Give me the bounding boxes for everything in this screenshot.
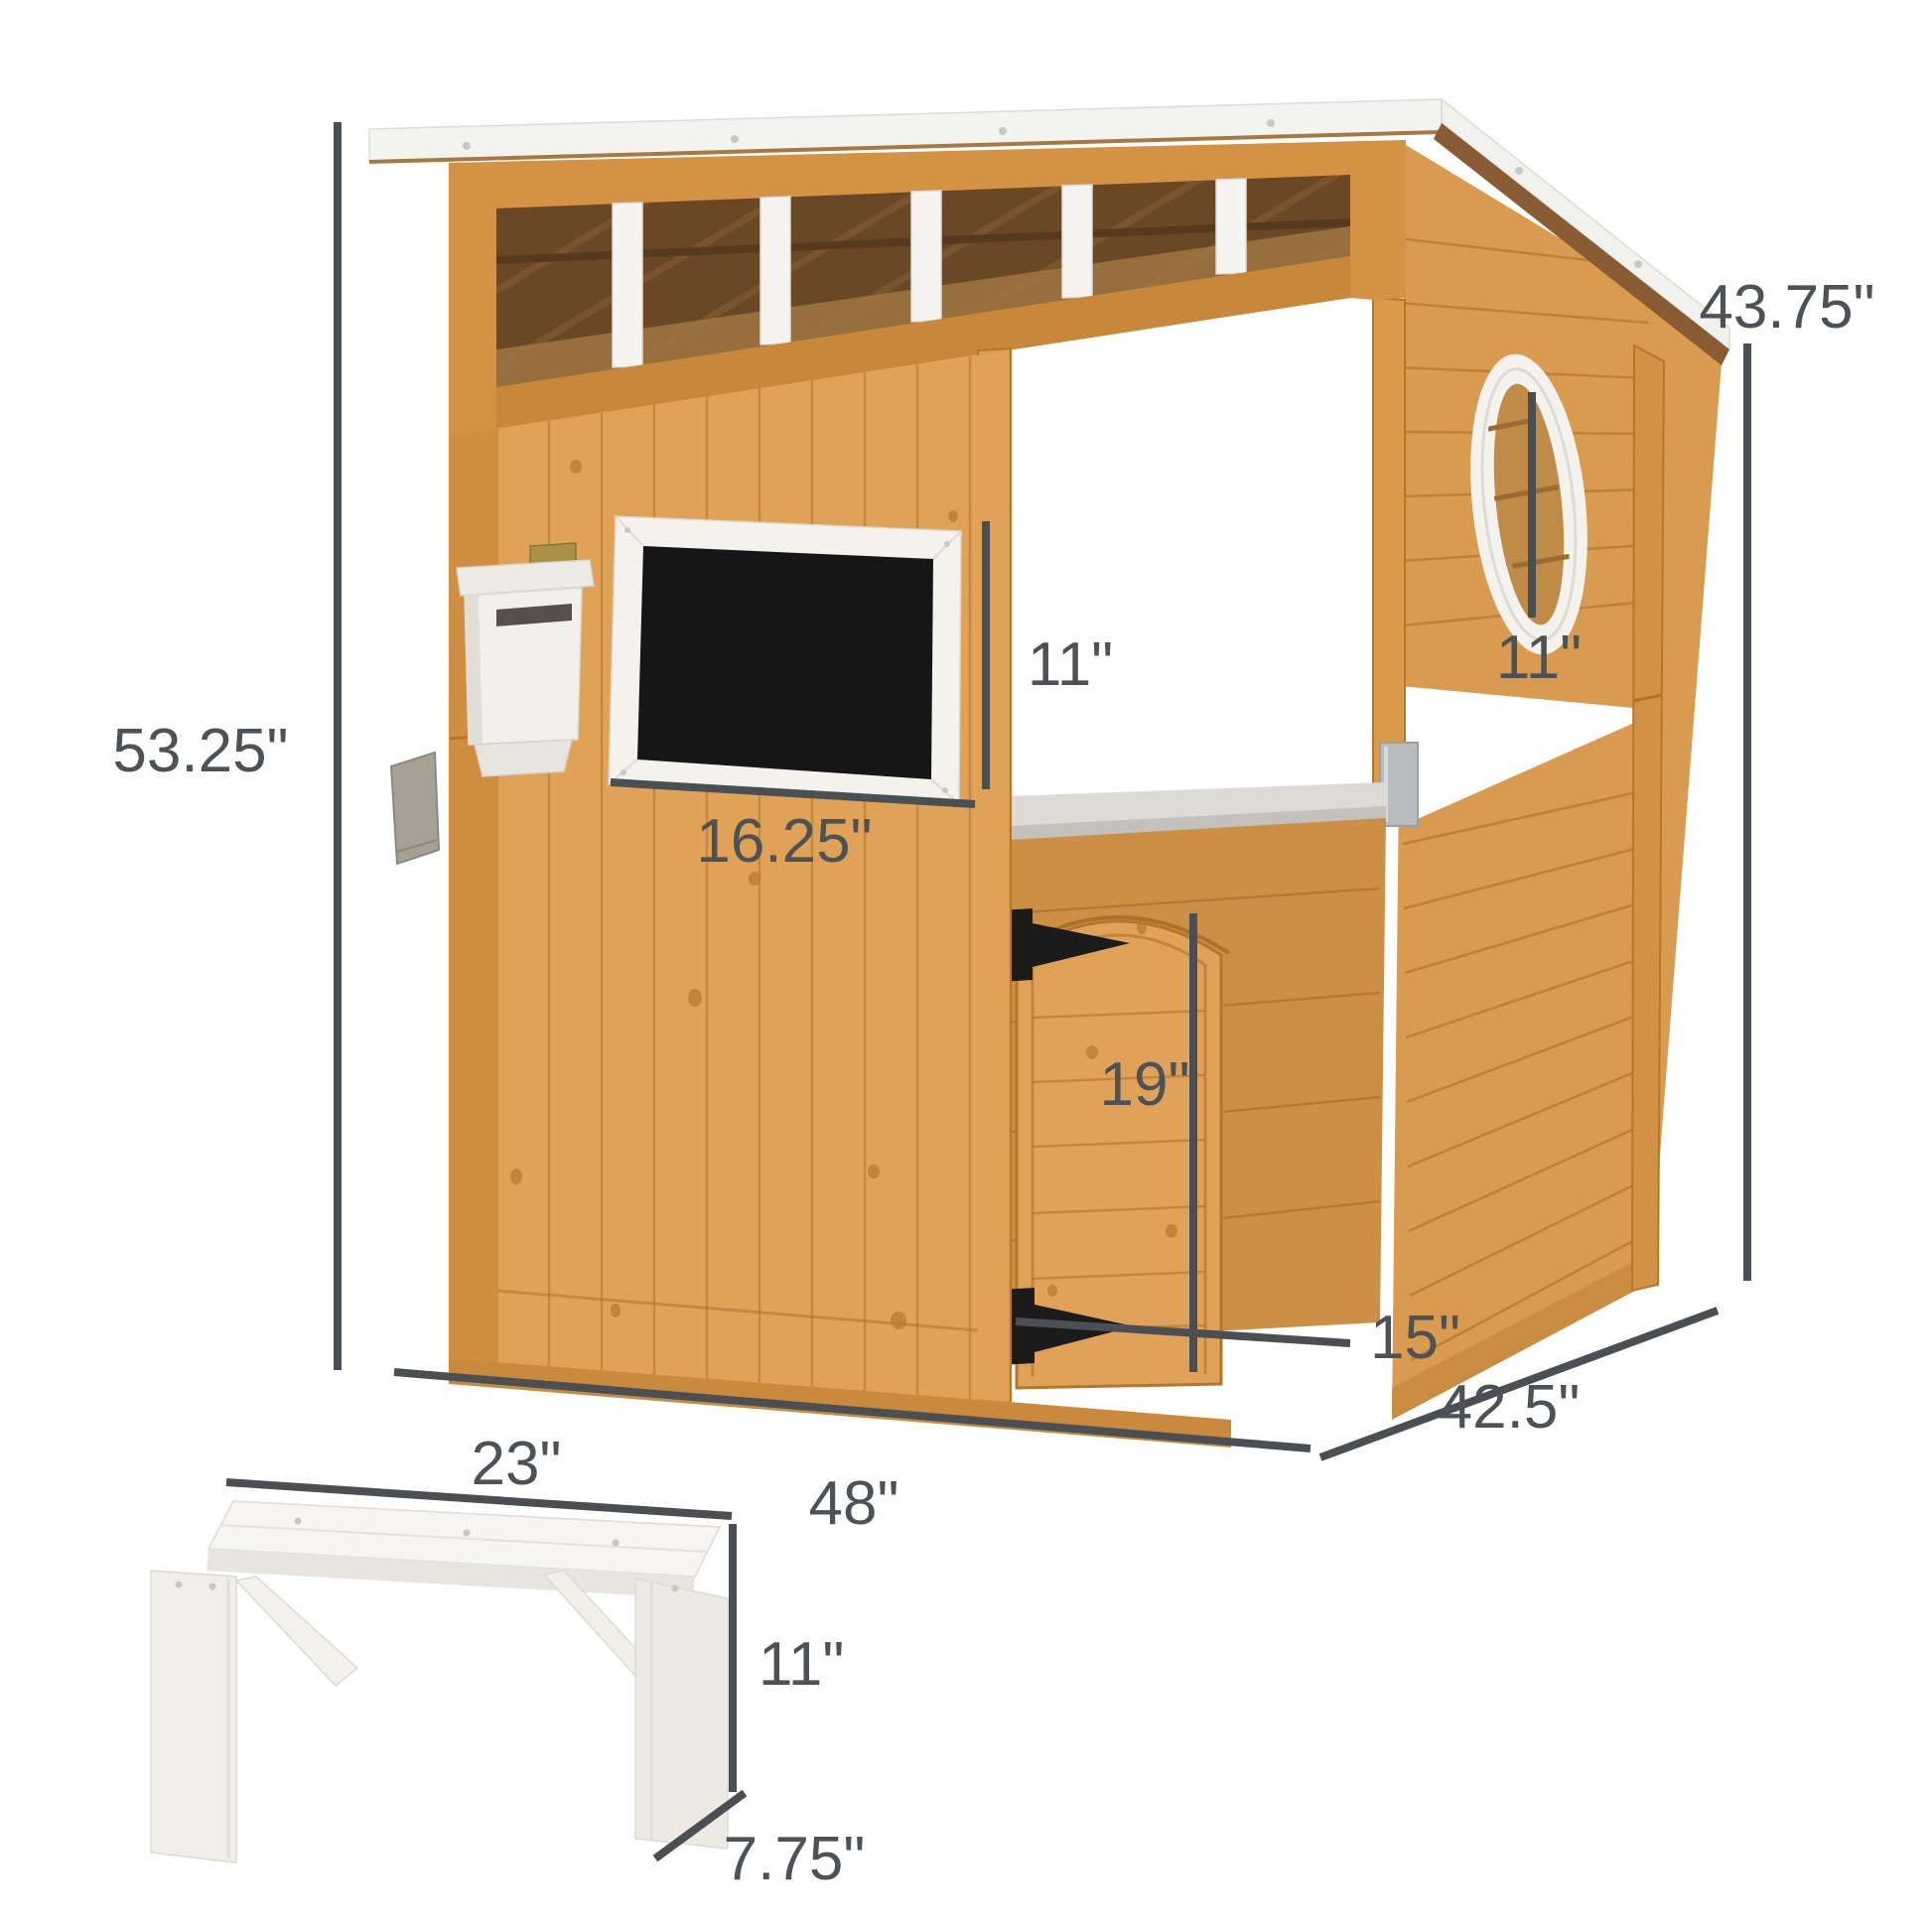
dimension-label-bench-depth: 7.75" <box>724 1825 866 1893</box>
bench-left-brace <box>236 1577 357 1686</box>
chalkboard <box>609 516 961 804</box>
dimension-label-front-height: 53.25" <box>112 717 288 785</box>
dimension-label-bench-length: 23" <box>472 1430 562 1498</box>
dimension-label-small-door-width: 15" <box>1370 1304 1460 1372</box>
kids-bench <box>151 1501 728 1863</box>
dimension-label-chalkboard-height: 11" <box>1028 630 1113 699</box>
bench-right-leg <box>635 1579 728 1849</box>
dimension-label-chalkboard-width: 16.25" <box>696 807 872 876</box>
dimension-label-bench-height: 11" <box>759 1630 844 1699</box>
dimension-label-house-depth: 42.5" <box>1439 1373 1581 1442</box>
dimension-label-porthole: 11" <box>1496 623 1582 692</box>
dimension-label-rear-height: 43.75" <box>1699 273 1874 342</box>
dimension-label-small-door-height: 19" <box>1100 1050 1190 1119</box>
planter-bracket <box>391 753 439 864</box>
rear-corner-trim <box>1632 345 1664 1291</box>
bench-left-leg <box>151 1571 236 1863</box>
playhouse-illustration: 53.25" 43.75" 11" 16.25" 11" 19" 15" 48"… <box>0 0 1932 1932</box>
side-wall <box>1373 145 1724 1420</box>
dimension-label-house-width: 48" <box>809 1469 899 1538</box>
product-dimension-image: 53.25" 43.75" 11" 16.25" 11" 19" 15" 48"… <box>0 0 1932 1932</box>
